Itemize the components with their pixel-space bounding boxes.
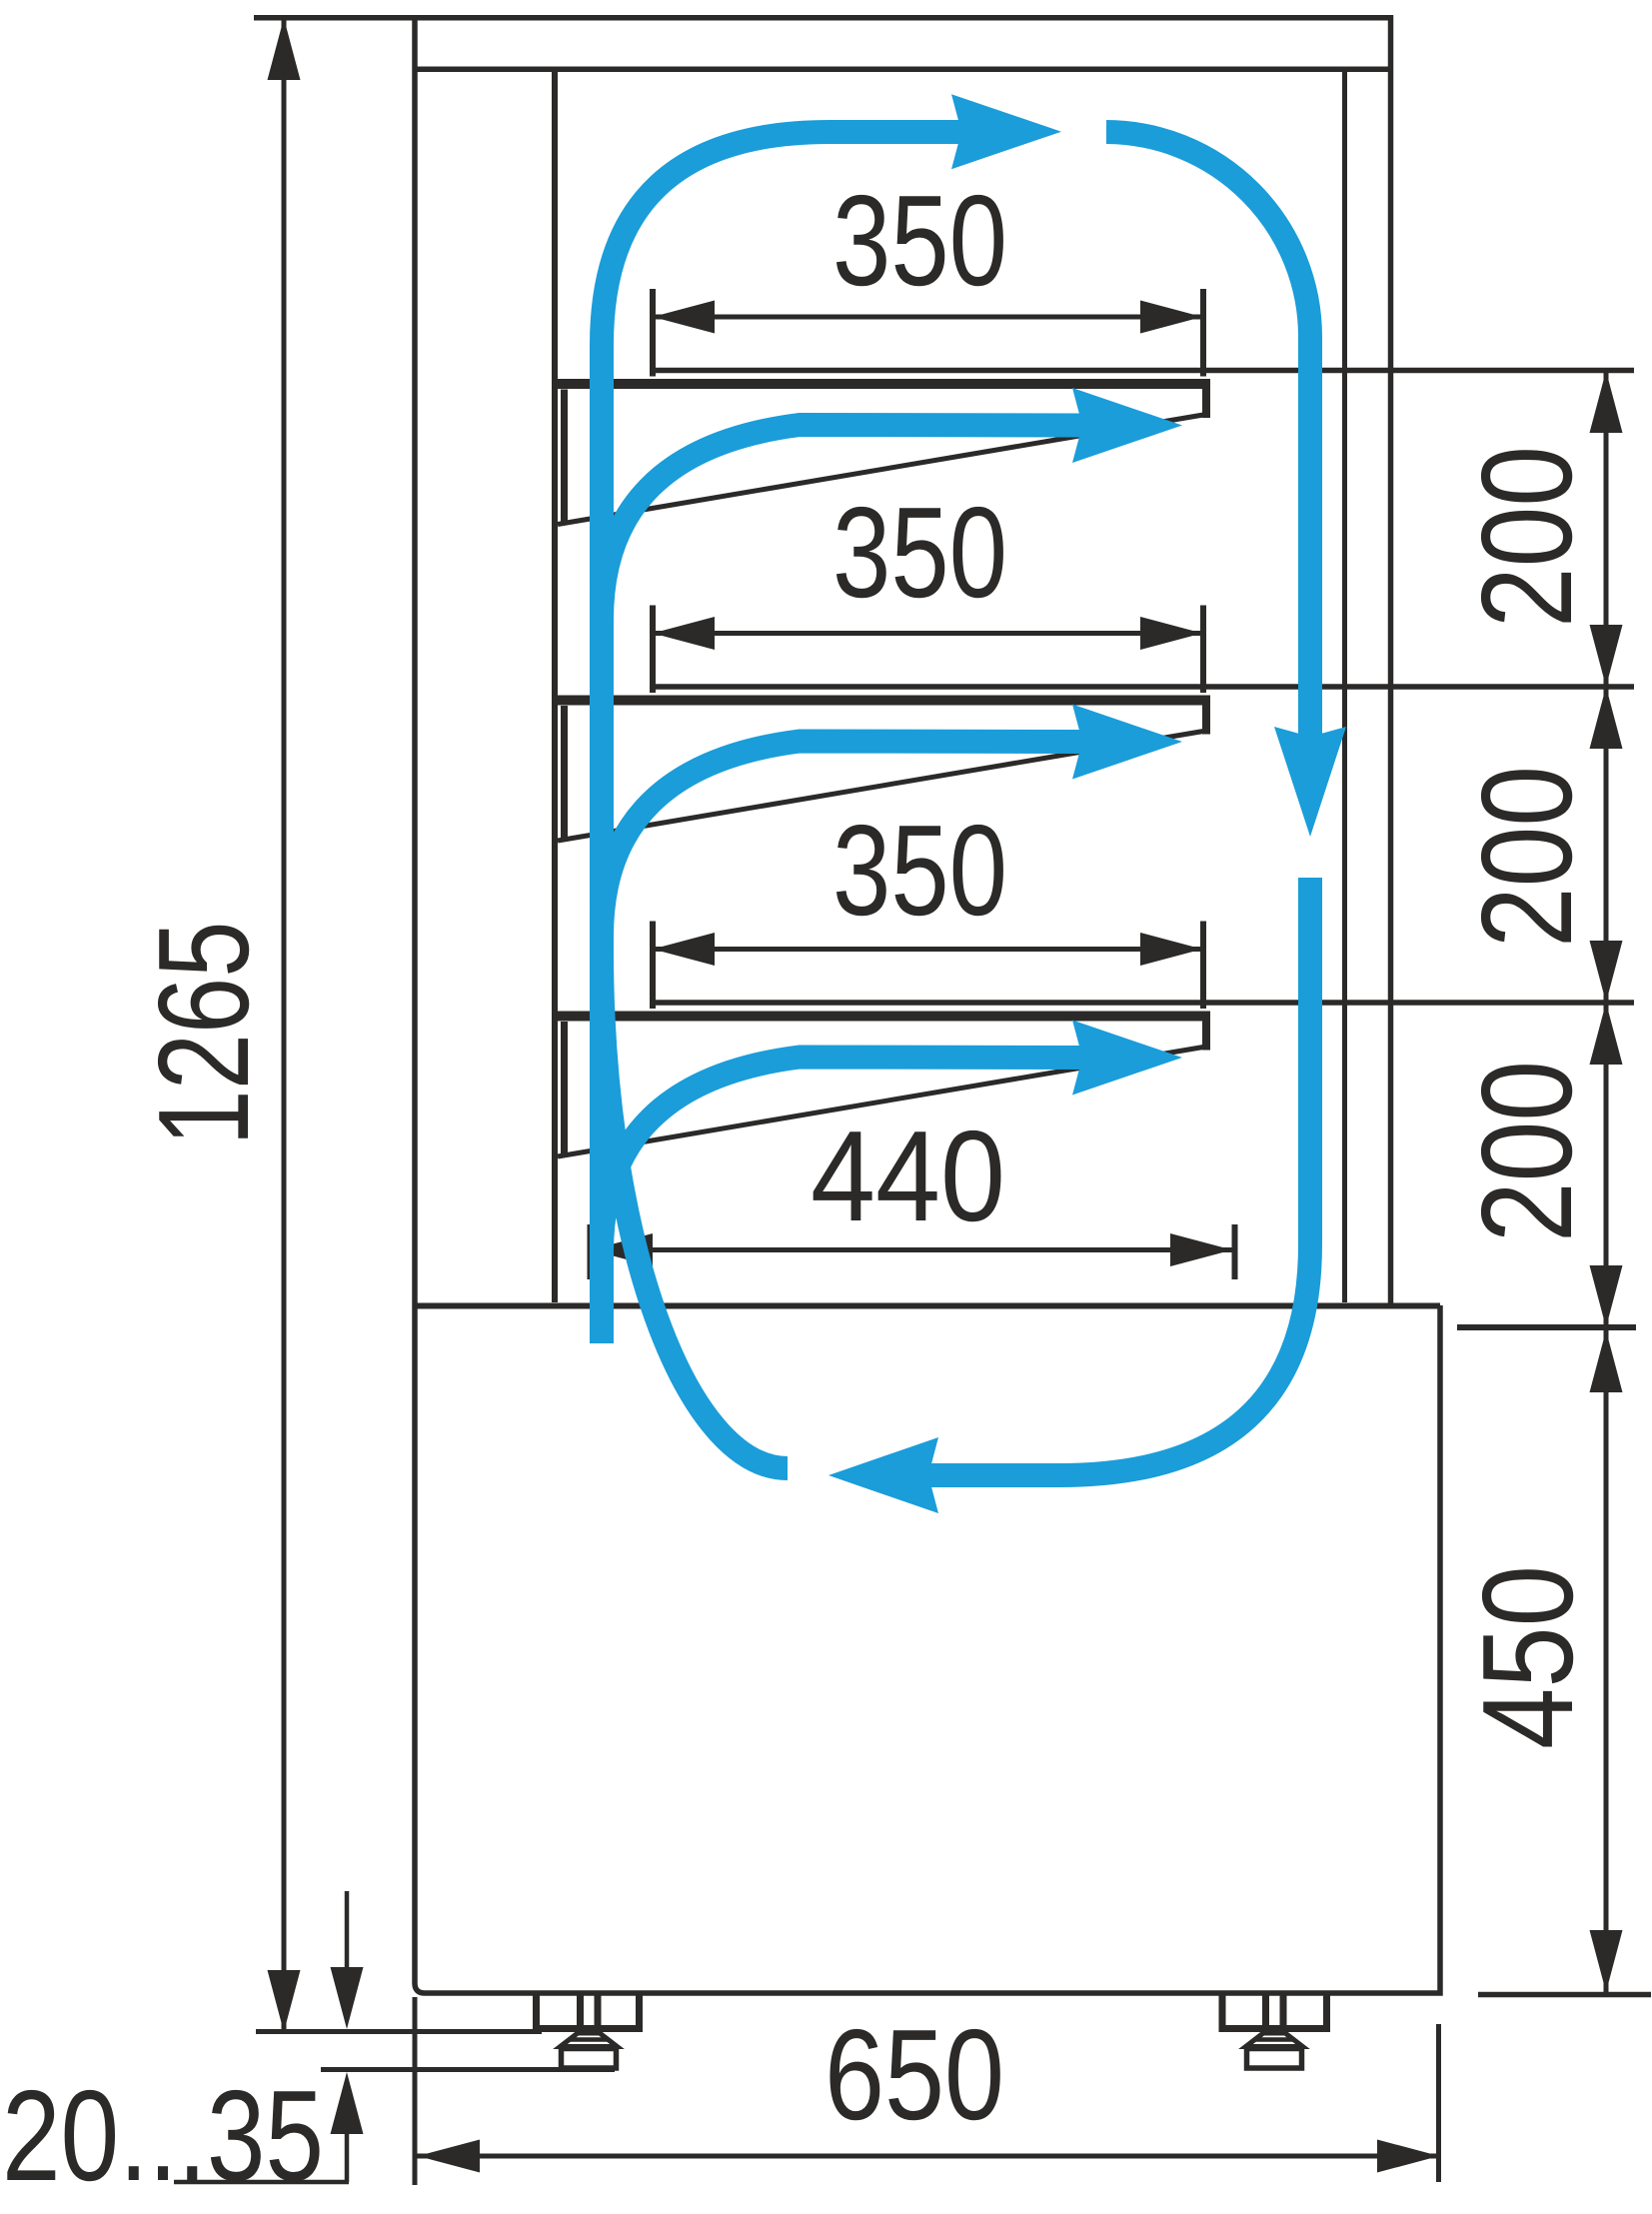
svg-text:200: 200 [1455,1061,1599,1242]
svg-text:350: 350 [832,481,1007,625]
svg-text:440: 440 [811,1105,1005,1248]
svg-text:350: 350 [832,169,1007,313]
svg-text:650: 650 [825,2003,1004,2147]
svg-text:350: 350 [832,799,1007,943]
svg-text:200: 200 [1455,766,1599,948]
svg-text:20...35: 20...35 [2,2064,324,2208]
svg-text:1265: 1265 [132,922,276,1146]
svg-text:200: 200 [1455,446,1599,628]
svg-text:450: 450 [1456,1565,1600,1749]
